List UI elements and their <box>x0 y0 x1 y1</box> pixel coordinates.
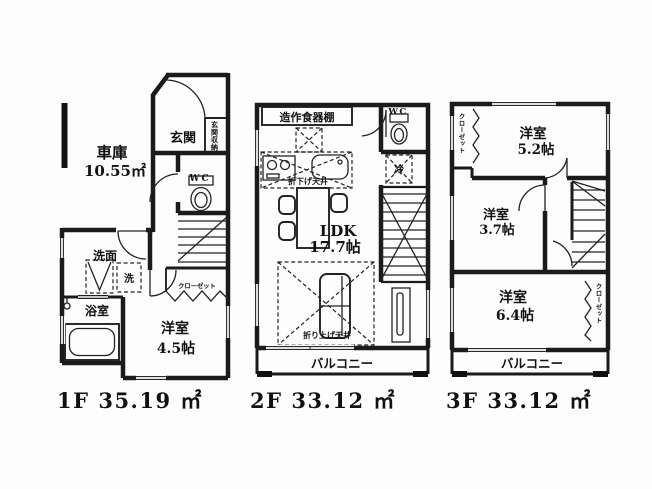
cupboard-label: 造作食器棚 <box>280 110 335 124</box>
stairs-door-arc-3f <box>553 241 572 266</box>
closet-folding-door-3f-top <box>473 109 479 163</box>
floor-plan-image: 車庫 10.55㎡ 玄関 玄関収納 WC 洗面 洗 浴室 クローゼット 洋室 4… <box>0 0 652 489</box>
bedroom3-size-label: 6.4帖 <box>496 307 534 324</box>
floor2-area-label: 2F 33.12 ㎡ <box>250 388 396 413</box>
closet-label-3f-top: クローゼット <box>458 113 465 154</box>
floor3-area-label: 3F 33.12 ㎡ <box>446 388 592 413</box>
stairs-icon-2f <box>381 192 428 280</box>
bedroom-size-label-1f: 4.5帖 <box>157 340 195 357</box>
floor-plan-1f: 車庫 10.55㎡ 玄関 玄関収納 WC 洗面 洗 浴室 クローゼット 洋室 4… <box>57 73 229 413</box>
floor1-walls <box>62 73 228 378</box>
washbasin-icon <box>86 260 113 293</box>
fridge-label: 冷 <box>394 163 405 176</box>
washroom-door-arc <box>118 231 146 259</box>
bedroom-door-arc-1f <box>150 270 176 296</box>
bedroom2-door-arc <box>519 185 545 211</box>
stairs-icon-3f <box>572 181 605 268</box>
wc-label-2f: WC <box>387 107 407 117</box>
stairs-icon-1f <box>178 216 228 262</box>
balcony-label-3f: バルコニー <box>501 356 563 371</box>
bedroom3-label: 洋室 <box>499 289 527 306</box>
range-hood-box <box>296 128 322 152</box>
counter-board-icon <box>392 288 410 342</box>
floor-plan-2f: 造作食器棚 WC 折下げ天井 冷 LDK 17.7帖 折り上げ天井 バルコニー … <box>250 103 430 413</box>
sofa-icon <box>320 274 350 338</box>
ldk-size-label: 17.7帖 <box>309 238 361 256</box>
toilet-icon-2f <box>390 114 408 144</box>
wc-label-1f: WC <box>188 174 210 184</box>
entrance-door-arc <box>167 80 205 121</box>
entrance-label: 玄関 <box>170 130 196 146</box>
closet-label-3f-right: クローゼット <box>595 283 602 324</box>
bedroom2-label: 洋室 <box>483 207 509 223</box>
floor-plan-3f: クローゼット 洋室 5.2帖 洋室 3.7帖 洋室 6.4帖 クローゼット バル… <box>446 102 610 413</box>
bath-label: 浴室 <box>85 303 109 318</box>
lowered-ceiling-label: 折下げ天井 <box>288 176 328 186</box>
closet-folding-door-3f-right <box>585 281 591 341</box>
washroom-label: 洗面 <box>93 248 117 263</box>
bedroom-label-1f: 洋室 <box>161 320 189 337</box>
bedroom1-label: 洋室 <box>520 125 548 142</box>
floor1-area-label: 1F 35.19 ㎡ <box>57 388 203 413</box>
closet-label-1f: クローゼット <box>178 281 216 290</box>
washer-label: 洗 <box>124 272 134 285</box>
bedroom1-door-arc <box>545 158 567 178</box>
closet-folding-door-1f <box>166 291 228 301</box>
floor-plan-page: 車庫 10.55㎡ 玄関 玄関収納 WC 洗面 洗 浴室 クローゼット 洋室 4… <box>0 0 652 489</box>
bedroom2-size-label: 3.7帖 <box>479 222 515 238</box>
entrance-storage-label: 玄関収納 <box>210 120 220 152</box>
garage-area-label: 10.55㎡ <box>84 162 146 180</box>
bedroom1-size-label: 5.2帖 <box>518 141 555 158</box>
raised-ceiling-label: 折り上げ天井 <box>303 330 351 340</box>
garage-label: 車庫 <box>96 143 128 162</box>
balcony-label-2f: バルコニー <box>311 356 373 371</box>
